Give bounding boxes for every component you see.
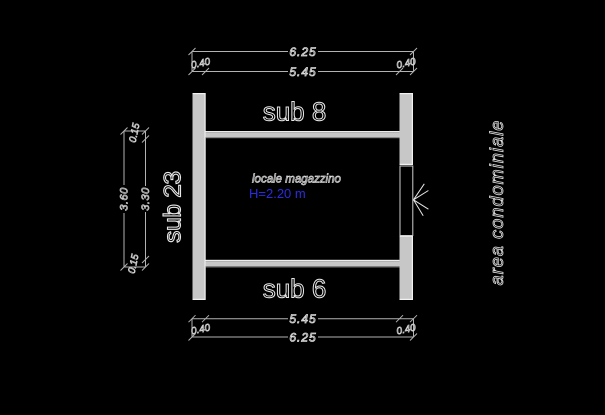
svg-text:6.25: 6.25 xyxy=(289,331,316,345)
svg-text:locale magazzino: locale magazzino xyxy=(252,174,341,186)
svg-text:5.45: 5.45 xyxy=(289,312,316,326)
svg-text:3.30: 3.30 xyxy=(140,187,152,211)
svg-text:6.25: 6.25 xyxy=(289,45,316,59)
svg-text:3.60: 3.60 xyxy=(119,187,131,211)
svg-text:5.45: 5.45 xyxy=(289,65,316,79)
svg-text:sub 8: sub 8 xyxy=(263,97,327,127)
svg-text:sub 6: sub 6 xyxy=(263,274,327,304)
svg-text:area condominiale: area condominiale xyxy=(487,120,507,286)
svg-text:H=2.20 m: H=2.20 m xyxy=(249,186,306,201)
svg-text:sub 23: sub 23 xyxy=(160,171,187,243)
